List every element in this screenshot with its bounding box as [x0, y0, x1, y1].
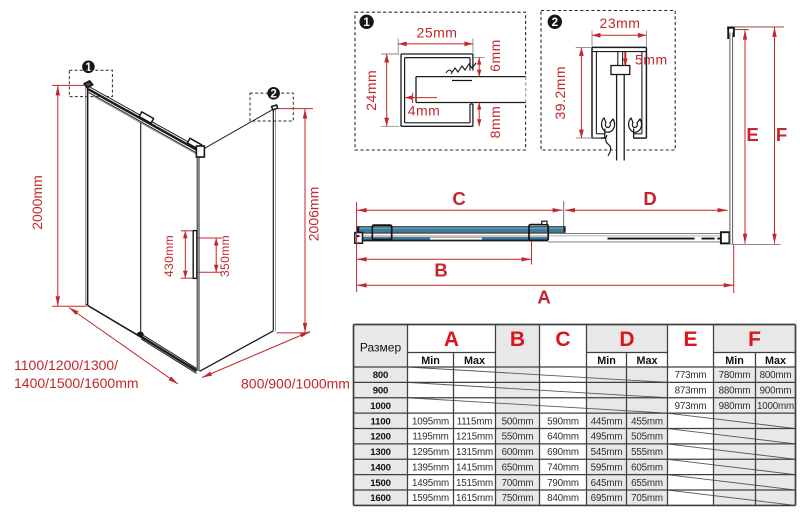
svg-text:445mm: 445mm: [591, 416, 623, 427]
svg-text:873mm: 873mm: [675, 386, 707, 397]
svg-text:773mm: 773mm: [675, 370, 707, 381]
svg-text:1415mm: 1415mm: [456, 462, 493, 473]
svg-text:B: B: [510, 328, 525, 351]
svg-text:1095mm: 1095mm: [412, 416, 449, 427]
svg-text:1000mm: 1000mm: [757, 401, 794, 412]
svg-text:2: 2: [270, 89, 276, 101]
svg-text:1100/1200/1300/: 1100/1200/1300/: [14, 357, 118, 373]
svg-text:1595mm: 1595mm: [412, 493, 449, 504]
svg-text:24mm: 24mm: [363, 70, 379, 111]
svg-text:1495mm: 1495mm: [412, 478, 449, 489]
svg-text:4mm: 4mm: [408, 103, 441, 119]
svg-text:8mm: 8mm: [487, 106, 503, 139]
svg-text:2: 2: [552, 17, 558, 29]
svg-text:350mm: 350mm: [218, 235, 232, 277]
svg-text:590mm: 590mm: [547, 416, 579, 427]
svg-text:900mm: 900mm: [760, 386, 792, 397]
svg-text:700mm: 700mm: [502, 478, 534, 489]
svg-text:C: C: [555, 328, 570, 351]
svg-text:600mm: 600mm: [502, 447, 534, 458]
svg-text:Max: Max: [636, 355, 657, 367]
svg-text:800: 800: [373, 370, 388, 381]
svg-text:1200: 1200: [370, 432, 391, 443]
svg-text:595mm: 595mm: [591, 462, 623, 473]
svg-text:2000mm: 2000mm: [29, 175, 45, 229]
svg-text:25mm: 25mm: [417, 25, 458, 41]
svg-text:A: A: [444, 328, 459, 351]
svg-text:555mm: 555mm: [631, 447, 663, 458]
svg-text:750mm: 750mm: [502, 493, 534, 504]
svg-text:695mm: 695mm: [591, 493, 623, 504]
svg-text:D: D: [619, 328, 634, 351]
svg-text:650mm: 650mm: [502, 462, 534, 473]
svg-text:1000: 1000: [370, 401, 391, 412]
svg-text:550mm: 550mm: [502, 432, 534, 443]
svg-text:C: C: [452, 188, 465, 209]
svg-text:790mm: 790mm: [547, 478, 579, 489]
svg-text:880mm: 880mm: [719, 386, 751, 397]
svg-text:500mm: 500mm: [502, 416, 534, 427]
svg-text:1600: 1600: [370, 493, 391, 504]
svg-text:Max: Max: [765, 355, 786, 367]
svg-text:39.2mm: 39.2mm: [552, 66, 568, 120]
svg-text:455mm: 455mm: [631, 416, 663, 427]
svg-text:645mm: 645mm: [591, 478, 623, 489]
svg-text:655mm: 655mm: [631, 478, 663, 489]
svg-text:780mm: 780mm: [719, 370, 751, 381]
svg-text:F: F: [748, 328, 761, 351]
svg-text:Min: Min: [597, 355, 616, 367]
svg-text:980mm: 980mm: [719, 401, 751, 412]
svg-text:1300: 1300: [370, 447, 391, 458]
svg-text:900: 900: [373, 386, 388, 397]
svg-text:E: E: [746, 124, 758, 145]
svg-text:1500: 1500: [370, 478, 391, 489]
svg-text:1195mm: 1195mm: [412, 432, 448, 443]
svg-text:D: D: [643, 188, 656, 209]
svg-text:1: 1: [363, 17, 370, 29]
svg-text:740mm: 740mm: [547, 462, 579, 473]
svg-text:6mm: 6mm: [487, 39, 503, 72]
svg-text:Max: Max: [464, 355, 485, 367]
svg-text:1: 1: [85, 62, 92, 74]
svg-text:1115mm: 1115mm: [457, 416, 493, 427]
svg-text:505mm: 505mm: [631, 432, 663, 443]
svg-text:705mm: 705mm: [631, 493, 663, 504]
svg-text:800/900/1000mm: 800/900/1000mm: [241, 376, 350, 392]
svg-text:2006mm: 2006mm: [306, 187, 322, 241]
svg-text:1615mm: 1615mm: [456, 493, 493, 504]
svg-text:Min: Min: [421, 355, 440, 367]
svg-text:1315mm: 1315mm: [456, 447, 493, 458]
svg-text:545mm: 545mm: [591, 447, 623, 458]
svg-text:1215mm: 1215mm: [456, 432, 493, 443]
svg-text:495mm: 495mm: [591, 432, 623, 443]
svg-text:430mm: 430mm: [162, 235, 176, 277]
svg-text:1400: 1400: [370, 462, 391, 473]
svg-text:1515mm: 1515mm: [456, 478, 493, 489]
svg-text:1100: 1100: [370, 416, 390, 427]
svg-text:605mm: 605mm: [631, 462, 663, 473]
svg-text:800mm: 800mm: [760, 370, 792, 381]
svg-text:5mm: 5mm: [635, 52, 668, 68]
svg-text:23mm: 23mm: [600, 15, 641, 31]
svg-text:973mm: 973mm: [675, 401, 707, 412]
svg-text:690mm: 690mm: [547, 447, 579, 458]
svg-text:F: F: [776, 124, 787, 145]
svg-text:Min: Min: [725, 355, 744, 367]
svg-text:1295mm: 1295mm: [412, 447, 449, 458]
svg-text:Размер: Размер: [360, 340, 402, 354]
svg-text:640mm: 640mm: [547, 432, 579, 443]
svg-text:B: B: [434, 260, 447, 281]
svg-text:1400/1500/1600mm: 1400/1500/1600mm: [14, 375, 139, 391]
svg-text:1395mm: 1395mm: [412, 462, 449, 473]
svg-text:A: A: [537, 287, 550, 308]
svg-text:840mm: 840mm: [547, 493, 579, 504]
svg-text:E: E: [683, 328, 697, 351]
